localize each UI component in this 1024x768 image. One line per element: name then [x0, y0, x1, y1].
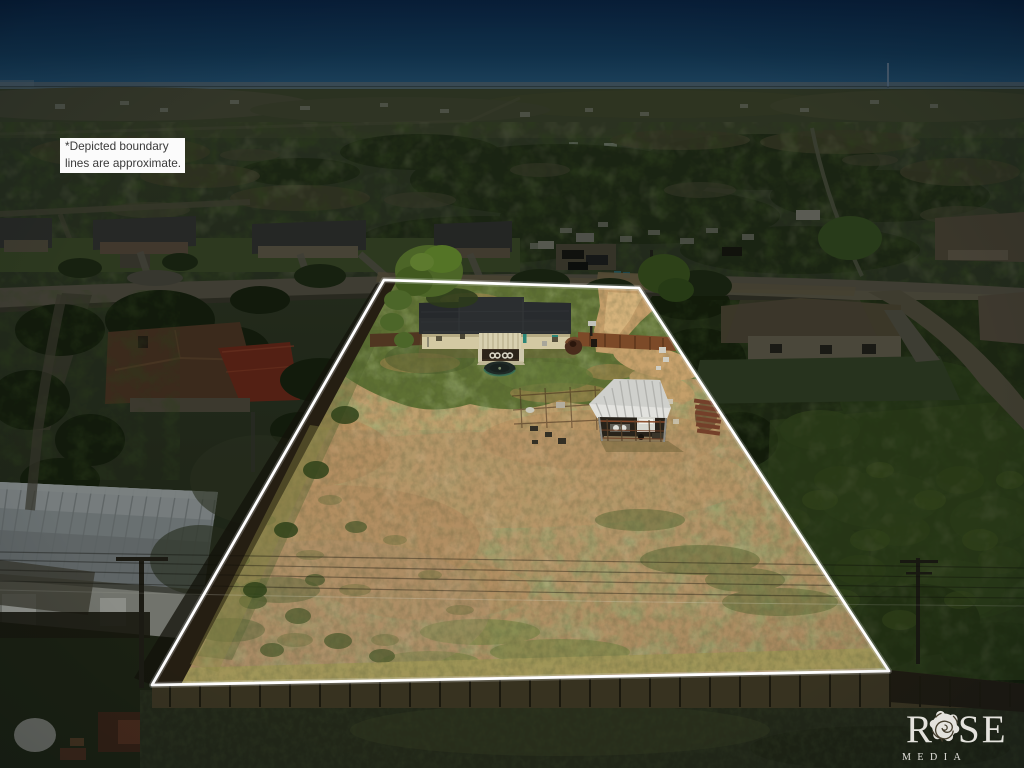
svg-text:R: R [906, 708, 932, 751]
svg-text:MEDIA: MEDIA [902, 752, 967, 763]
svg-text:SE: SE [958, 708, 1008, 751]
